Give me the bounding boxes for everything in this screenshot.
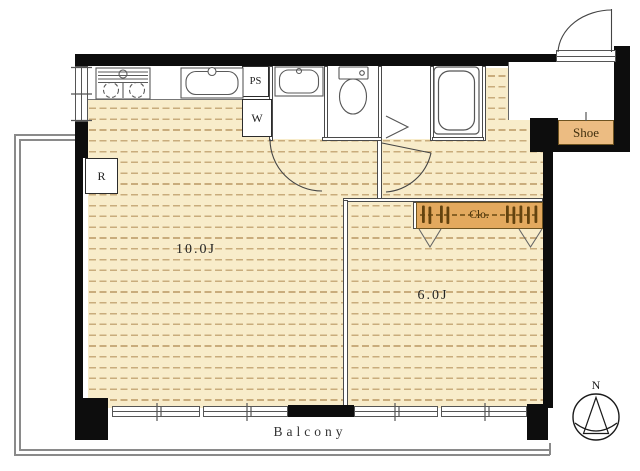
wall-top [75, 54, 508, 66]
compass-north-label: N [588, 378, 604, 393]
window-balcony-1 [112, 406, 200, 417]
wall-bottom-middle [288, 405, 354, 417]
wall-corridor-west [377, 140, 382, 200]
pillar-bottom-right [527, 404, 548, 440]
balcony-rail-top-stub-outer [14, 134, 76, 136]
pipe-space-label: PS [250, 76, 262, 87]
refrigerator-label: R [97, 169, 105, 184]
wall-between-rooms [343, 200, 348, 408]
pillar-entry-left [530, 118, 558, 152]
balcony-rail-bottom-outer [14, 454, 550, 456]
wall-south-bath [432, 137, 484, 141]
utility-rooms [269, 66, 484, 139]
washing-machine-box: W [242, 99, 272, 137]
window-balcony-4 [441, 406, 527, 417]
room-label-living: 10.0J [156, 242, 236, 258]
balcony-rail-right-return [549, 443, 551, 455]
wall-vestibule-bath [430, 66, 434, 141]
pipe-space-box: PS [242, 66, 269, 97]
refrigerator-box: R [85, 158, 118, 194]
wall-toilet-vestibule [378, 66, 382, 141]
shoe-cabinet-label: Shoe [573, 125, 599, 141]
wall-left-lower [75, 158, 83, 398]
compass-icon [573, 394, 619, 440]
window-balcony-2 [203, 406, 288, 417]
shoe-cabinet: Shoe [558, 120, 614, 145]
entry-door [558, 9, 612, 52]
window-left-wall [75, 66, 88, 122]
wall-washroom-toilet [324, 66, 328, 141]
floor-plan: PS W R Shoe Clo. [0, 0, 640, 471]
window-balcony-3 [354, 406, 438, 417]
wall-south-toilet [322, 137, 382, 141]
balcony-rail-left-inner [19, 139, 21, 451]
entry-genkan [508, 62, 614, 120]
wall-top-entry-stub [506, 54, 558, 62]
closet-label: Clo. [458, 209, 500, 222]
washing-machine-label: W [251, 111, 262, 126]
balcony-rail-top-stub-inner [19, 139, 76, 141]
entry-door-threshold [556, 50, 616, 62]
wall-entry-right [614, 46, 630, 152]
wall-left-upper [75, 122, 88, 158]
wall-entry-bottom [556, 145, 630, 152]
room-label-bedroom: 6.0J [400, 288, 466, 304]
balcony-rail-left-outer [14, 134, 16, 456]
wall-bath-passage [482, 66, 486, 141]
balcony-rail-bottom-inner [19, 449, 550, 451]
pillar-bottom-left [75, 398, 108, 440]
kitchen-counter [88, 66, 242, 100]
balcony-label: Balcony [250, 424, 370, 440]
wall-right [543, 150, 553, 408]
